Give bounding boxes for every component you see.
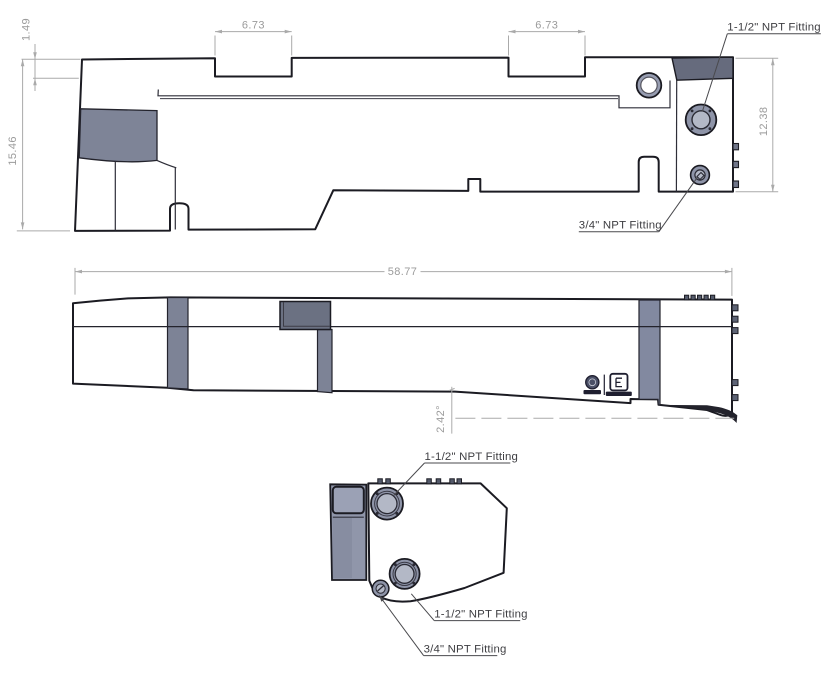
dimension-length: 58.77 bbox=[75, 266, 732, 296]
side-view-step-notch bbox=[280, 302, 331, 330]
npt-fitting-large-end-bottom-icon bbox=[390, 559, 420, 589]
top-view bbox=[75, 57, 739, 231]
side-view bbox=[73, 295, 738, 423]
npt-fitting-label: 3/4" NPT Fitting bbox=[424, 643, 507, 655]
top-view-patch-curve bbox=[157, 160, 176, 167]
dimension-notch-right: 6.73 bbox=[509, 19, 586, 55]
dim-12-38: 12.38 bbox=[758, 107, 770, 137]
npt-fitting-small-end-icon bbox=[372, 580, 389, 597]
npt-fitting-label: 1-1/2" NPT Fitting bbox=[434, 608, 528, 620]
technical-drawing-canvas: 6.73 6.73 1.49 15.46 12.38 58.77 2.42° 1… bbox=[0, 0, 824, 688]
end-view bbox=[330, 479, 507, 602]
callout-end-fitting-small: 3/4" NPT Fitting bbox=[379, 595, 507, 656]
npt-fitting-label: 1-1/2" NPT Fitting bbox=[727, 21, 821, 33]
dim-15-46: 15.46 bbox=[7, 136, 19, 166]
side-view-bottom-shadow bbox=[659, 405, 737, 423]
dimension-end-width: 12.38 bbox=[736, 58, 779, 191]
dimension-height: 15.46 bbox=[7, 59, 70, 231]
end-view-cap bbox=[333, 487, 364, 514]
top-view-left-slope-patch bbox=[79, 109, 157, 162]
side-view-weld-band-1 bbox=[168, 297, 189, 389]
dim-58-77: 58.77 bbox=[388, 266, 418, 278]
npt-fitting-small-top-icon bbox=[691, 166, 710, 185]
end-view-strip-shadow bbox=[333, 518, 352, 578]
cad-drawing-page: 6.73 6.73 1.49 15.46 12.38 58.77 2.42° 1… bbox=[0, 0, 824, 688]
certification-stamp-square-icon bbox=[606, 374, 632, 396]
top-view-side-tabs bbox=[733, 144, 739, 188]
certification-stamp-round-icon bbox=[584, 376, 602, 395]
sender-hole-icon bbox=[637, 73, 662, 98]
npt-fitting-label: 3/4" NPT Fitting bbox=[579, 220, 662, 232]
side-view-weld-band-2 bbox=[318, 330, 333, 393]
top-view-chamfer-band bbox=[672, 57, 733, 80]
dimension-lip: 1.49 bbox=[21, 18, 81, 91]
npt-fitting-label: 1-1/2" NPT Fitting bbox=[425, 451, 519, 463]
top-view-outline bbox=[75, 57, 733, 231]
npt-fitting-large-end-top-icon bbox=[371, 488, 403, 520]
top-view-step-line bbox=[158, 81, 670, 108]
side-view-weld-band-3 bbox=[639, 300, 660, 405]
dim-6-73-left: 6.73 bbox=[242, 19, 265, 31]
dim-2-42-deg: 2.42° bbox=[435, 405, 447, 433]
dim-6-73-right: 6.73 bbox=[535, 19, 558, 31]
dim-1-49: 1.49 bbox=[21, 18, 33, 41]
dimension-notch-left: 6.73 bbox=[215, 19, 292, 55]
side-view-top-tabs bbox=[685, 295, 715, 300]
npt-fitting-large-top-icon bbox=[686, 105, 717, 136]
callout-end-fitting-top: 1-1/2" NPT Fitting bbox=[394, 451, 518, 496]
